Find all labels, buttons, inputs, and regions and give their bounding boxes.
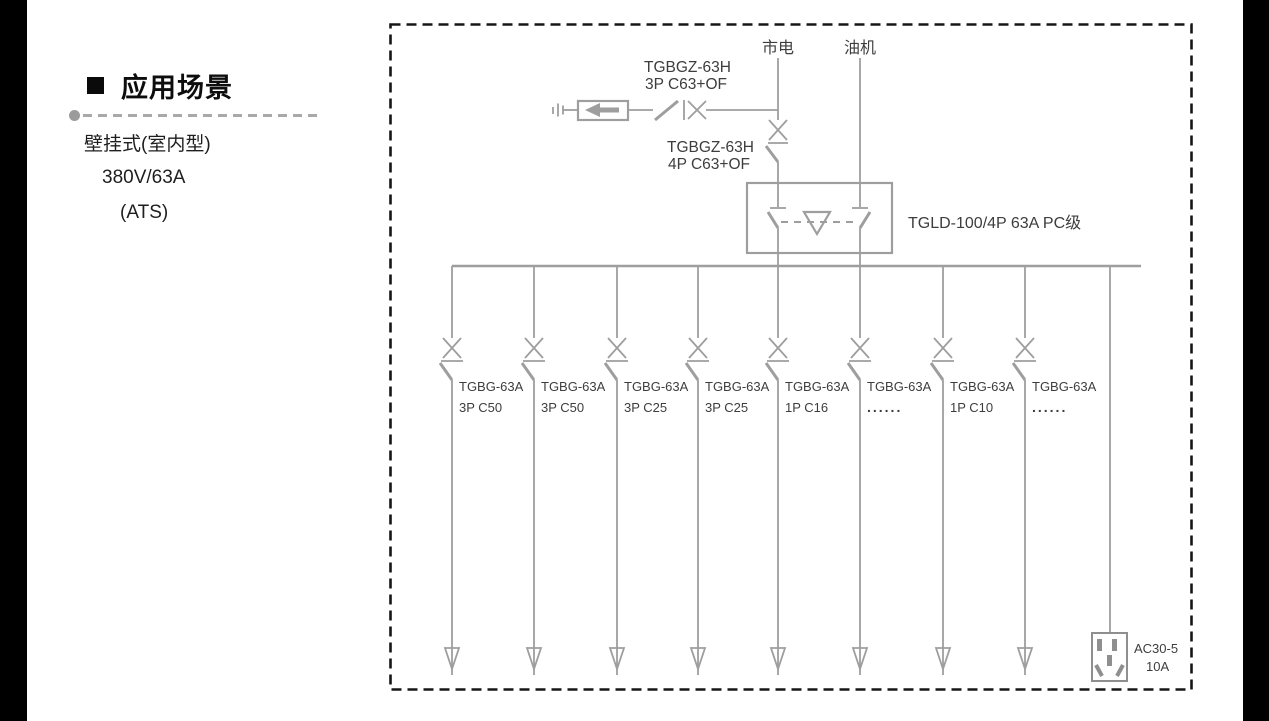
svg-text:3P C25: 3P C25 [624, 400, 667, 415]
svg-text:3P C50: 3P C50 [459, 400, 502, 415]
svg-text:TGBG-63A: TGBG-63A [785, 379, 850, 394]
svg-text:TGBG-63A: TGBG-63A [705, 379, 770, 394]
svg-text:TGBG-63A: TGBG-63A [867, 379, 932, 394]
ats-switch-box [747, 183, 892, 253]
spd-breaker-icon [655, 100, 706, 120]
socket-feeder: AC30-5 10A [1092, 266, 1178, 681]
svg-text:1P C16: 1P C16 [785, 400, 828, 415]
branch-4: TGBG-63A 3P C25 [686, 266, 770, 675]
spd-branch [553, 100, 778, 120]
branch-1: TGBG-63A 3P C50 [440, 266, 524, 675]
svg-text:TGBG-63A: TGBG-63A [950, 379, 1015, 394]
svg-text:TGBGZ-63H: TGBGZ-63H [644, 59, 731, 76]
svg-text:3P C50: 3P C50 [541, 400, 584, 415]
svg-text:10A: 10A [1146, 659, 1169, 674]
svg-text:TGBG-63A: TGBG-63A [541, 379, 606, 394]
socket-label: AC30-5 10A [1134, 641, 1178, 674]
generator-source-label: 油机 [844, 39, 876, 57]
svg-text:1P C10: 1P C10 [950, 400, 993, 415]
mains-source-label: 市电 [762, 39, 794, 57]
transfer-breaker-icon [766, 120, 788, 183]
svg-text:AC30-5: AC30-5 [1134, 641, 1178, 656]
branch-7: TGBG-63A 1P C10 [931, 266, 1015, 675]
svg-text:3P C25: 3P C25 [705, 400, 748, 415]
transfer-breaker-label: TGBGZ-63H 4P C63+OF [667, 139, 754, 173]
ats-label: TGLD-100/4P 63A PC级 [908, 214, 1081, 232]
svg-text:TGBG-63A: TGBG-63A [1032, 379, 1097, 394]
svg-text:3P C63+OF: 3P C63+OF [645, 76, 727, 93]
branch-5: TGBG-63A 1P C16 [766, 266, 850, 675]
svg-text:4P C63+OF: 4P C63+OF [668, 156, 750, 173]
branch-8: TGBG-63A ...... [1013, 266, 1097, 675]
branch-3: TGBG-63A 3P C25 [605, 266, 689, 675]
spd-breaker-label: TGBGZ-63H 3P C63+OF [644, 59, 731, 93]
ground-icon [553, 104, 563, 117]
svg-text:TGBGZ-63H: TGBGZ-63H [667, 139, 754, 156]
diagram-dashed-border [391, 25, 1192, 690]
socket-icon [1092, 633, 1127, 681]
svg-text:TGBG-63A: TGBG-63A [459, 379, 524, 394]
branch-2: TGBG-63A 3P C50 [522, 266, 606, 675]
spd-box-icon [578, 101, 628, 120]
svg-text:......: ...... [867, 399, 902, 415]
svg-text:TGBG-63A: TGBG-63A [624, 379, 689, 394]
branch-6: TGBG-63A ...... [848, 266, 932, 675]
svg-text:......: ...... [1032, 399, 1067, 415]
single-line-diagram: 市电 油机 TGBGZ-63H 3P C63+OF [0, 0, 1269, 721]
